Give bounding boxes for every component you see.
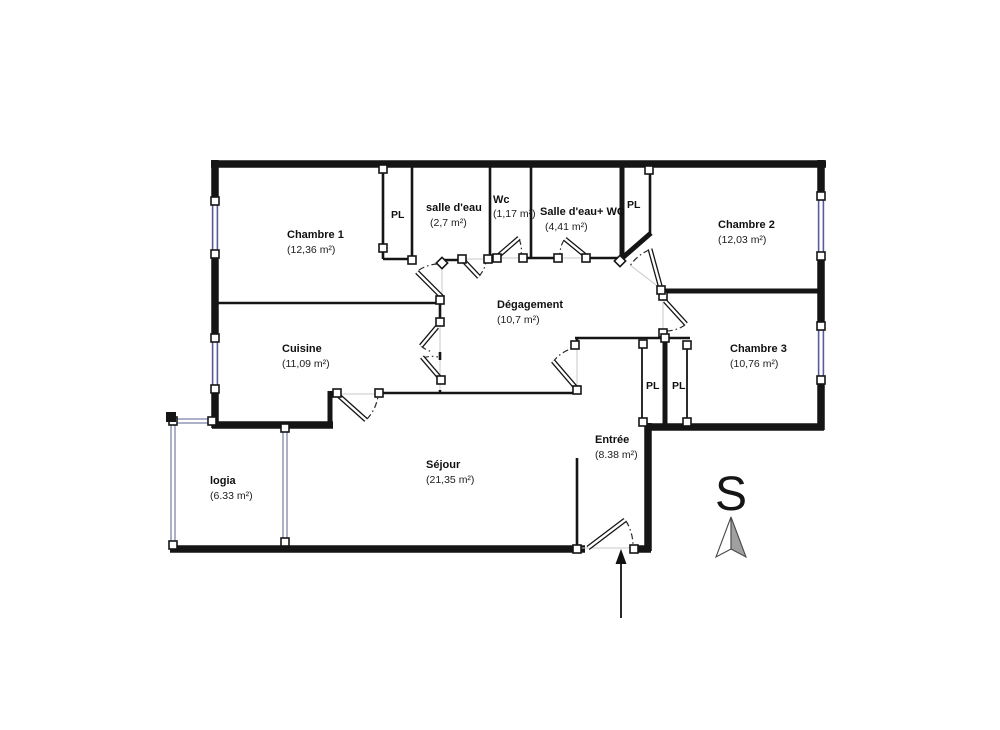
wall-post: [639, 340, 647, 348]
room-name-sejour: Séjour: [426, 459, 461, 471]
wall-post: [169, 541, 177, 549]
room-name-degagement: Dégagement: [497, 299, 563, 311]
wall-post: [493, 254, 501, 262]
room-area-degagement: (10,7 m²): [497, 314, 540, 326]
window-left-2: [213, 338, 218, 389]
wall-post: [437, 376, 445, 384]
door-entree-leaf: [588, 520, 625, 548]
wall-post: [630, 545, 638, 553]
wall-post: [683, 418, 691, 426]
door-chambre-3: [663, 297, 686, 332]
wall-post: [519, 254, 527, 262]
floor-plan: S Chambre 1 (12,36 m²) PL salle d'eau (2…: [0, 0, 1000, 730]
door-sejour-est-leaf: [553, 361, 577, 389]
door-chambre-3-swing-arc: [666, 325, 685, 331]
room-area-salle-eau: (2,7 m²): [430, 217, 467, 229]
wall-post: [211, 385, 219, 393]
wall-post: [661, 334, 669, 342]
wall-post: [554, 254, 562, 262]
door-sejour-ouest: [422, 356, 440, 390]
closet-label-pl-entree: PL: [646, 380, 660, 392]
wall-post: [817, 192, 825, 200]
room-area-salle-eau-wc: (4,41 m²): [545, 221, 588, 233]
room-area-wc: (1,17 m²): [493, 208, 536, 220]
door-sejour-est-swing-arc: [553, 348, 574, 362]
door-cuisine-sejour-leaf: [338, 395, 366, 420]
room-name-chambre3: Chambre 3: [730, 343, 787, 355]
room-name-chambre1: Chambre 1: [287, 229, 344, 241]
wall-post: [408, 256, 416, 264]
entrance-arrow-head: [616, 549, 627, 564]
room-name-wc: Wc: [493, 194, 510, 206]
wall-post: [375, 389, 383, 397]
floor-plan-page: S Chambre 1 (12,36 m²) PL salle d'eau (2…: [0, 0, 1000, 730]
compass-south-label: S: [715, 468, 747, 521]
entrance-arrow-icon: [616, 549, 627, 618]
door-chambre-1-swing-arc: [419, 264, 437, 270]
room-name-chambre2: Chambre 2: [718, 219, 775, 231]
wall-post: [211, 197, 219, 205]
wall-post: [436, 296, 444, 304]
door-entree-swing-arc: [626, 521, 633, 546]
wall-post: [645, 166, 653, 174]
wall-post: [817, 376, 825, 384]
wall-post: [208, 417, 216, 425]
closet-label-pl-nord-est: PL: [627, 199, 641, 211]
door-sejour-ouest-leaf: [422, 357, 440, 378]
wall-post: [281, 538, 289, 546]
compass-needle-icon: [731, 517, 746, 557]
door-chambre-1: [417, 264, 443, 298]
door-chambre-1-leaf: [417, 272, 443, 298]
door-sejour-est: [553, 347, 577, 389]
door-cuisine-sejour-swing-arc: [367, 396, 378, 419]
door-cuisine-sejour: [337, 394, 379, 420]
window-right-1: [819, 196, 824, 256]
wall-post: [571, 341, 579, 349]
room-area-entree: (8.38 m²): [595, 449, 638, 461]
window-left-1: [213, 201, 218, 254]
room-area-cuisine: (11,09 m²): [282, 358, 330, 370]
wall-post: [817, 322, 825, 330]
room-area-chambre1: (12,36 m²): [287, 244, 335, 256]
wall-post: [333, 389, 341, 397]
wall-post: [639, 418, 647, 426]
door-chambre-2: [630, 249, 661, 289]
wall-post: [683, 341, 691, 349]
room-area-logia: (6.33 m²): [210, 490, 253, 502]
room-name-logia: logia: [210, 475, 237, 487]
wall-post: [379, 165, 387, 173]
wall-post: [436, 318, 444, 326]
door-chambre-2-leaf: [650, 249, 661, 289]
wall-post: [281, 424, 289, 432]
wall-post: [379, 244, 387, 252]
closet-label-pl-chambre3: PL: [672, 380, 686, 392]
wall-post: [211, 334, 219, 342]
wall-post: [573, 386, 581, 394]
door-cuisine-leaf: [421, 327, 437, 346]
room-name-entree: Entrée: [595, 434, 629, 446]
compass-needle-icon: [716, 517, 731, 557]
door-entree: [578, 520, 633, 548]
wall-post: [657, 286, 665, 294]
wall-post: [167, 413, 176, 422]
room-labels: Chambre 1 (12,36 m²) PL salle d'eau (2,7…: [210, 194, 787, 502]
wall-post: [484, 255, 492, 263]
wall-post: [573, 545, 581, 553]
wall-post: [211, 250, 219, 258]
wall-post: [817, 252, 825, 260]
closet-label-pl-nord-ouest: PL: [391, 209, 405, 221]
room-area-sejour: (21,35 m²): [426, 474, 474, 486]
room-name-salle-eau: salle d'eau: [426, 202, 482, 214]
compass: S: [715, 468, 747, 557]
window-right-2: [819, 326, 824, 380]
room-area-chambre2: (12,03 m²): [718, 234, 766, 246]
room-name-salle-eau-wc: Salle d'eau+ WC: [540, 206, 625, 218]
door-chambre-2-swing-arc: [630, 250, 649, 266]
wall-post: [582, 254, 590, 262]
wall-post: [458, 255, 466, 263]
room-area-chambre3: (10,76 m²): [730, 358, 778, 370]
door-chambre-3-leaf: [665, 301, 686, 324]
logia-glazing-left: [171, 423, 175, 545]
room-name-cuisine: Cuisine: [282, 343, 322, 355]
door-wc-swing-arc: [519, 239, 521, 255]
logia-glazing-divider: [283, 428, 287, 542]
